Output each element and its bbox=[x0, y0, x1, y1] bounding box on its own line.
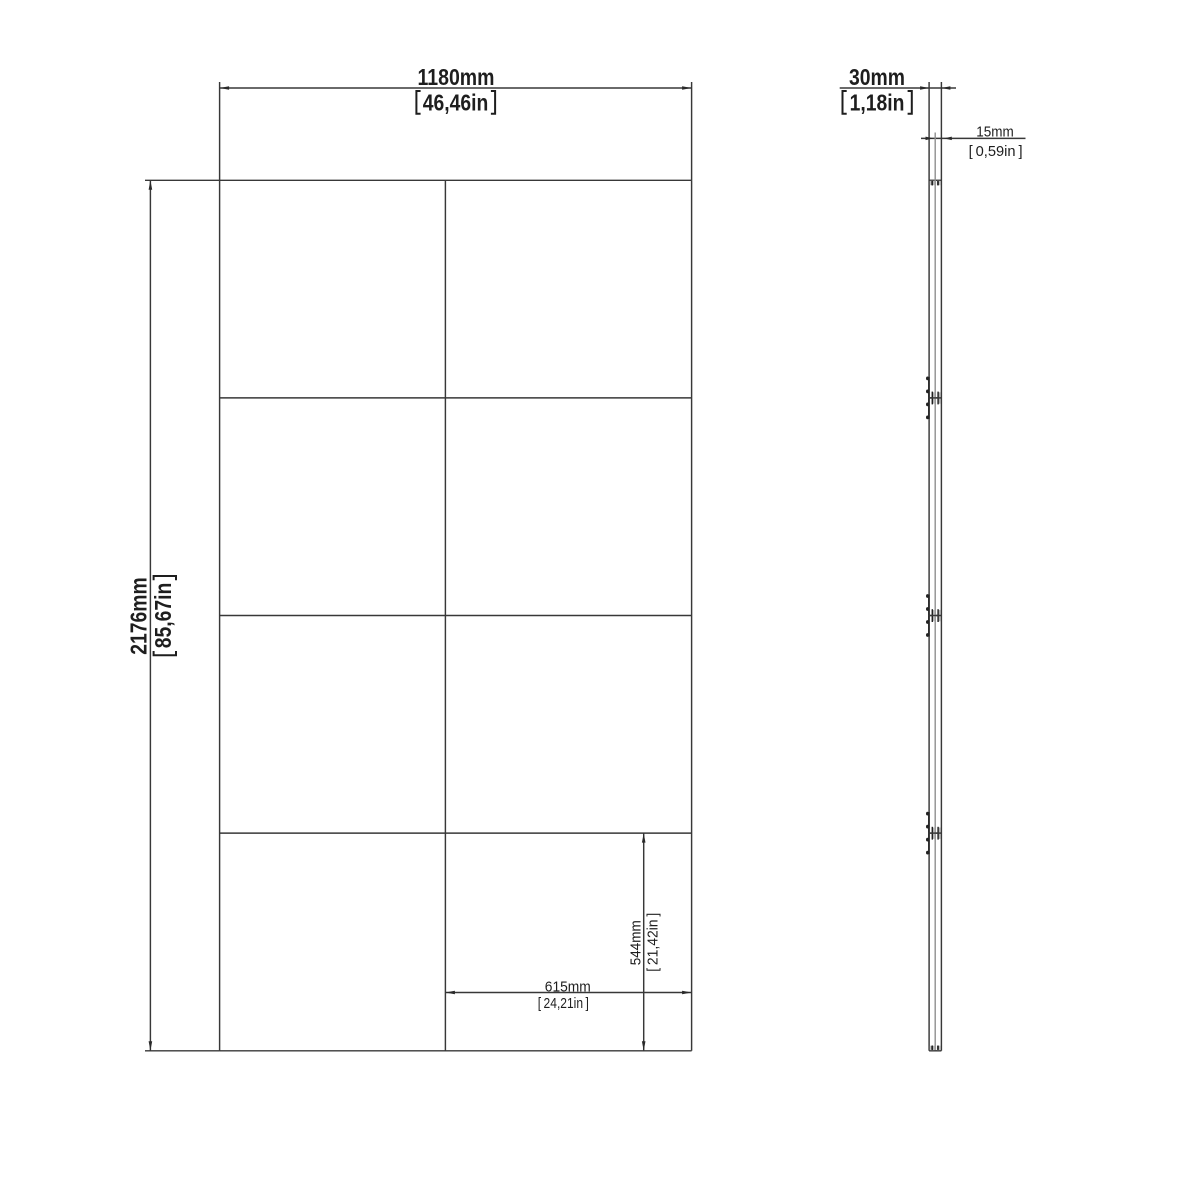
svg-text:544mm: 544mm bbox=[627, 920, 644, 965]
svg-text:46,46in: 46,46in bbox=[423, 89, 489, 115]
svg-text:2176mm: 2176mm bbox=[126, 577, 152, 654]
svg-text:30mm: 30mm bbox=[849, 64, 905, 90]
svg-text:[ 0,59in ]: [ 0,59in ] bbox=[969, 143, 1023, 160]
svg-text:1180mm: 1180mm bbox=[418, 64, 495, 90]
svg-text:[ 24,21in ]: [ 24,21in ] bbox=[538, 995, 589, 1012]
svg-text:15mm: 15mm bbox=[976, 124, 1014, 141]
svg-text:1,18in: 1,18in bbox=[850, 89, 905, 115]
svg-text:615mm: 615mm bbox=[545, 979, 591, 996]
svg-text:85,67in: 85,67in bbox=[150, 583, 176, 649]
svg-text:[ 21,42in ]: [ 21,42in ] bbox=[645, 913, 662, 972]
